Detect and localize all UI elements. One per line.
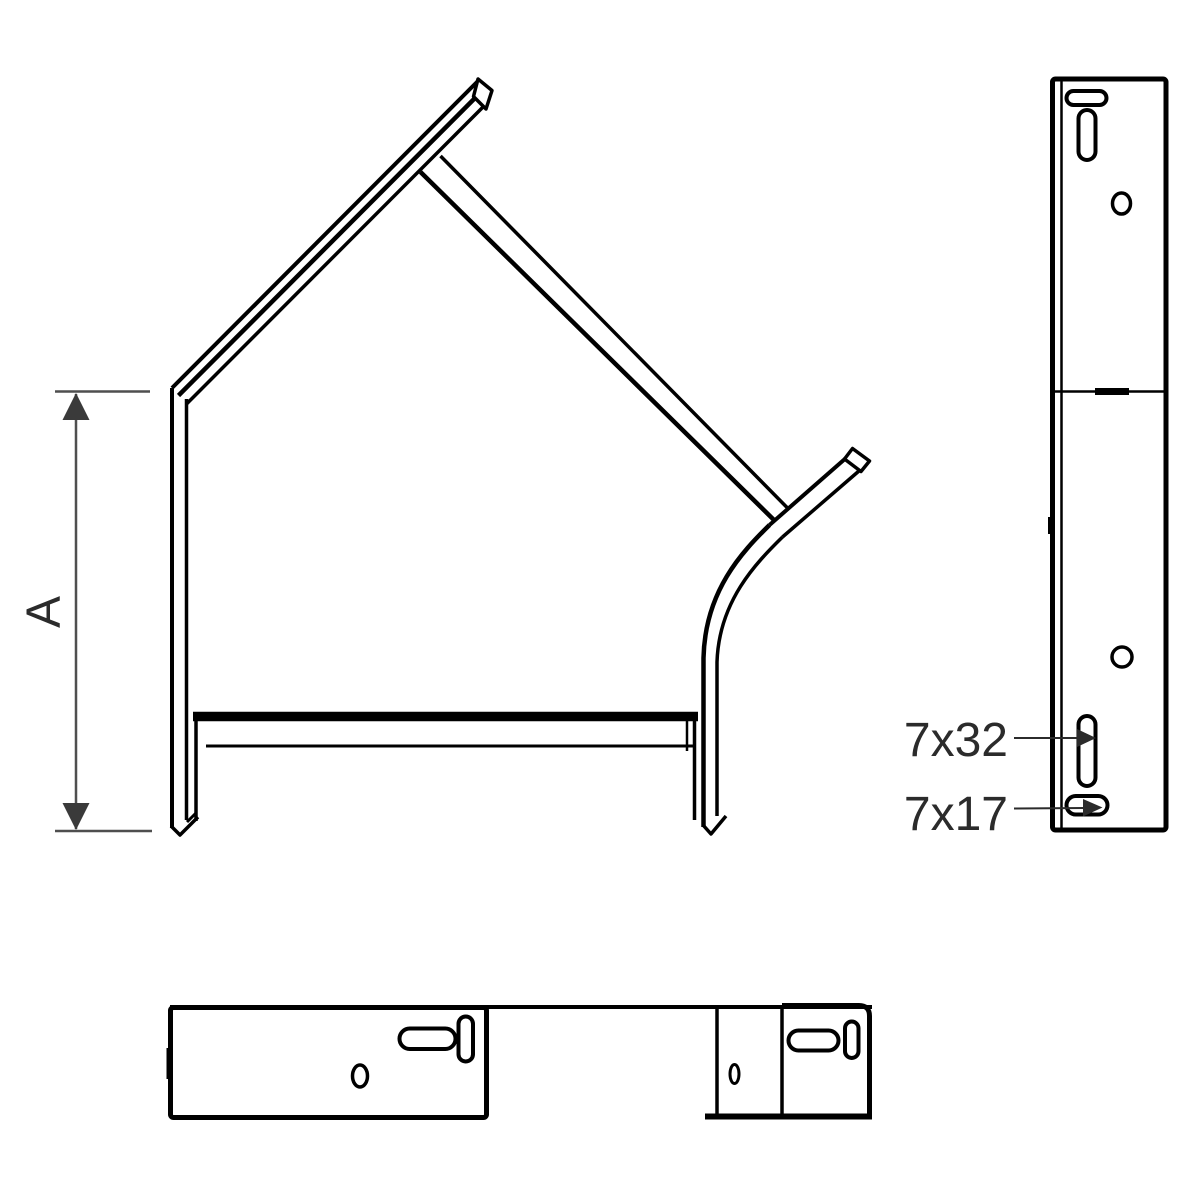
right-rail-foot-chamfer — [703, 816, 726, 834]
bottom-hole-left — [353, 1065, 368, 1087]
bottom-slot-horizontal-right — [789, 1031, 839, 1051]
rung-upper-edge — [441, 156, 789, 509]
hole-bottom — [1112, 647, 1132, 667]
rung-lower-edge — [421, 172, 776, 521]
top-rail-inner-edge — [187, 107, 484, 404]
slot-7x32-bottom — [1079, 716, 1096, 786]
leader-line-7x17 — [1014, 808, 1084, 809]
top-rail-outer-edge — [172, 81, 479, 389]
label-7x32: 7x32 — [904, 714, 1008, 767]
main-view — [171, 79, 870, 835]
side-view — [1052, 79, 1167, 830]
slot-7x32-top — [1079, 110, 1096, 160]
dimension-a: A — [18, 392, 153, 832]
bottom-view — [170, 1006, 873, 1118]
left-rail-foot-chamfer — [171, 817, 198, 835]
top-rail-end-cap — [474, 79, 493, 109]
cable-tray-bend-drawing: A 7x32 7x17 — [0, 0, 1200, 1200]
right-rail-end-cap — [845, 449, 870, 472]
top-rail-flange-edge — [179, 88, 486, 396]
bottom-slot-vertical-left — [459, 1017, 474, 1062]
right-rail-outer-curve — [704, 525, 770, 827]
bottom-slot-vertical-right — [845, 1022, 859, 1059]
hole-top — [1113, 193, 1131, 214]
bottom-slot-horizontal-left — [400, 1029, 456, 1050]
slot-callouts: 7x32 7x17 — [904, 714, 1103, 841]
label-7x17: 7x17 — [904, 788, 1008, 841]
dimension-arrow-down-icon — [63, 803, 90, 830]
bottom-hole-right — [730, 1065, 739, 1084]
slot-7x17-top — [1067, 91, 1107, 105]
dimension-arrow-up-icon — [63, 393, 90, 420]
side-plate-outline — [1053, 79, 1167, 830]
bottom-left-flange-outline — [171, 1008, 487, 1118]
technical-drawing-page: A 7x32 7x17 — [0, 0, 1200, 1200]
dimension-label: A — [18, 596, 71, 628]
